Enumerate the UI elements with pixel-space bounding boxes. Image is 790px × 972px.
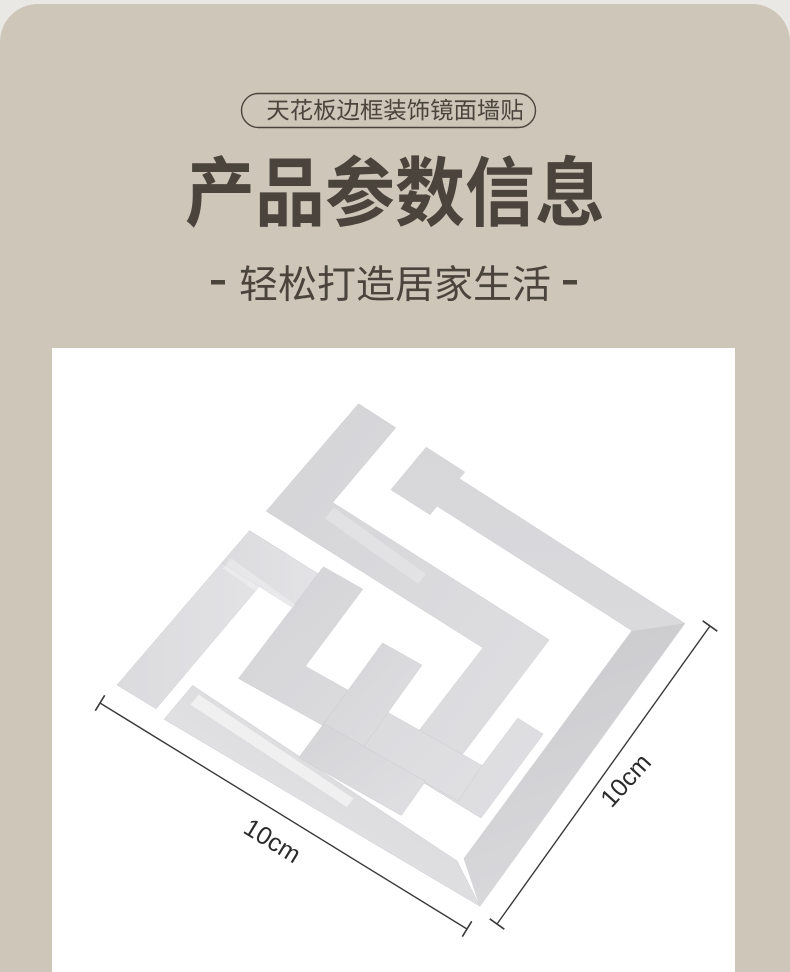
svg-text:10cm: 10cm bbox=[595, 749, 657, 813]
svg-text:10cm: 10cm bbox=[239, 813, 306, 869]
